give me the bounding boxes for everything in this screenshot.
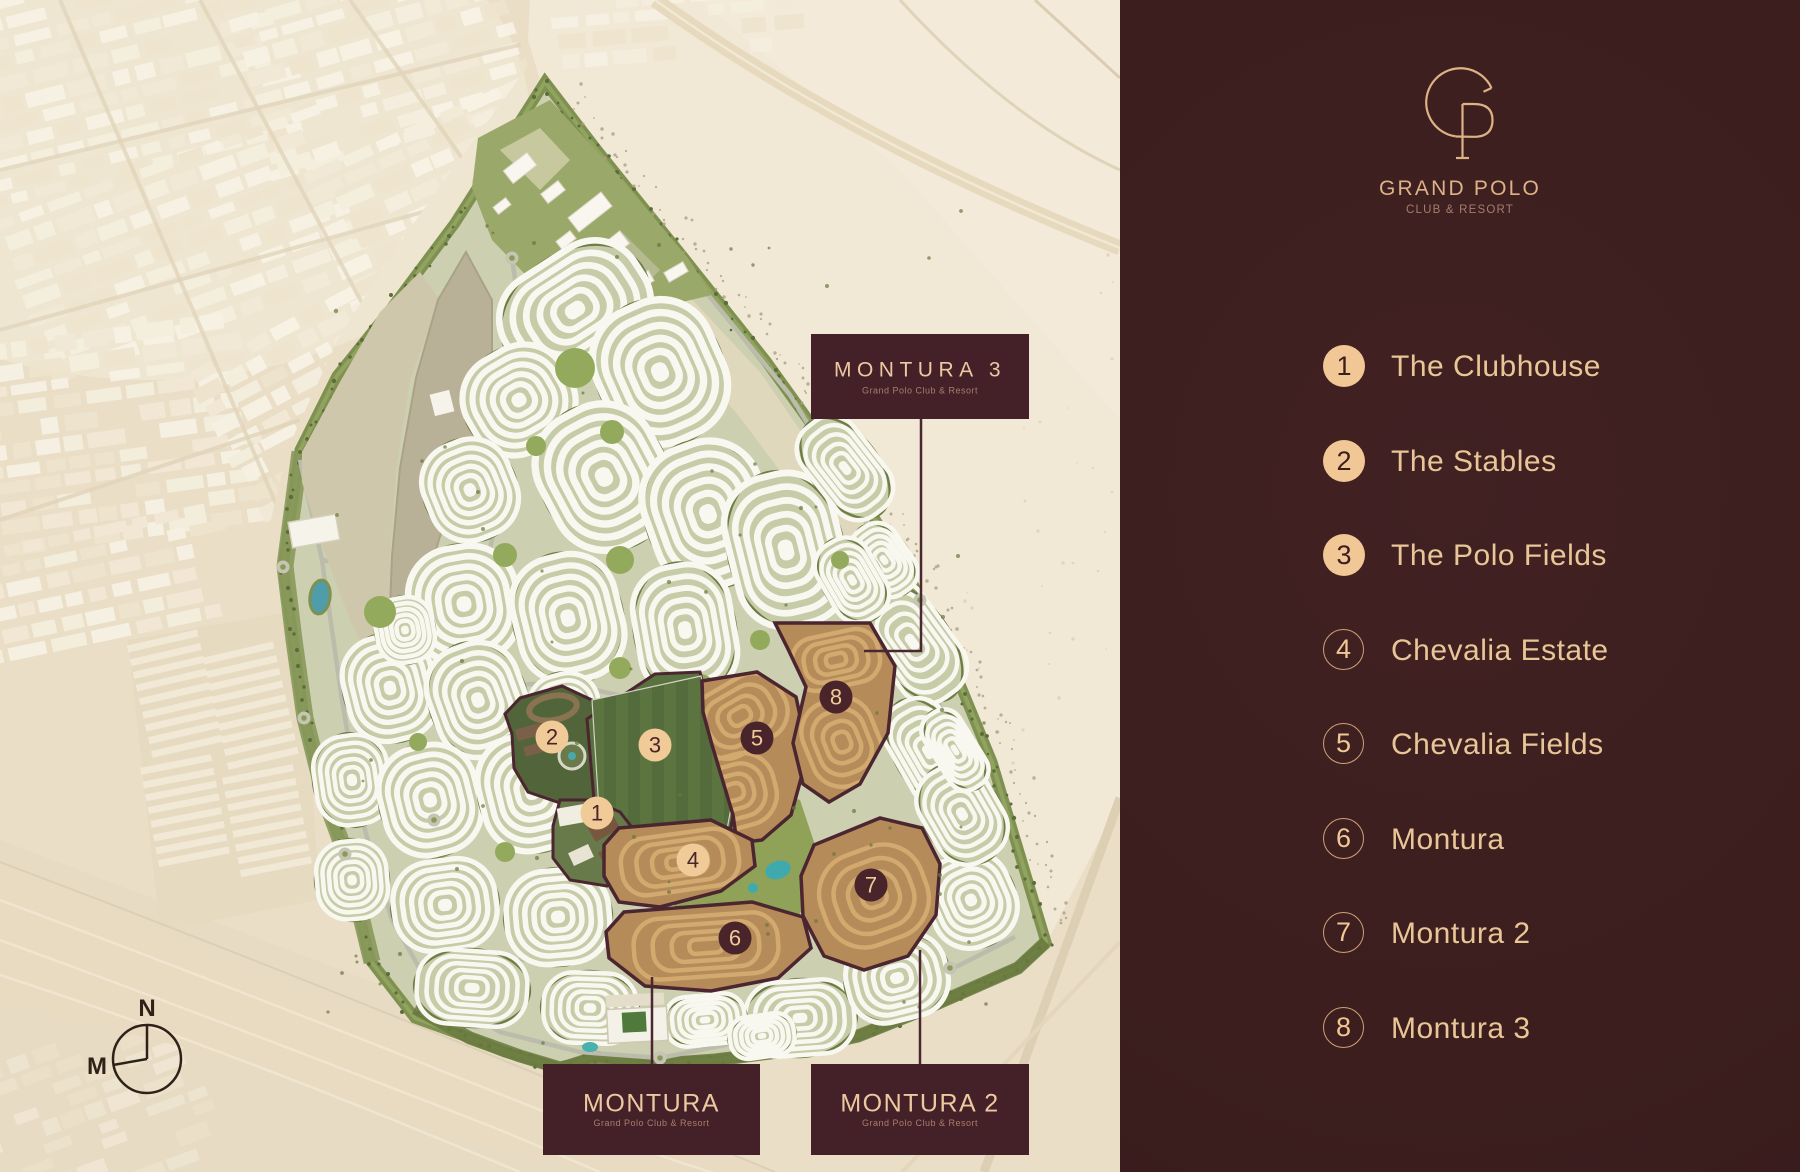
svg-text:Grand Polo Club & Resort: Grand Polo Club & Resort (862, 386, 978, 396)
svg-text:Grand Polo Club & Resort: Grand Polo Club & Resort (862, 1118, 978, 1128)
svg-text:3: 3 (649, 733, 661, 758)
svg-text:6: 6 (729, 926, 741, 951)
svg-text:MONTURA 2: MONTURA 2 (840, 1089, 999, 1117)
svg-text:5: 5 (751, 726, 763, 751)
svg-text:N: N (138, 995, 155, 1022)
svg-text:2: 2 (546, 725, 558, 750)
svg-text:MONTURA: MONTURA (583, 1089, 720, 1117)
svg-text:7: 7 (865, 873, 877, 898)
svg-text:M: M (87, 1053, 107, 1080)
svg-text:MONTURA 3: MONTURA 3 (834, 359, 1006, 382)
svg-text:8: 8 (830, 685, 842, 710)
svg-text:4: 4 (687, 848, 699, 873)
svg-text:Grand Polo Club & Resort: Grand Polo Club & Resort (593, 1118, 709, 1128)
svg-text:1: 1 (591, 801, 603, 826)
